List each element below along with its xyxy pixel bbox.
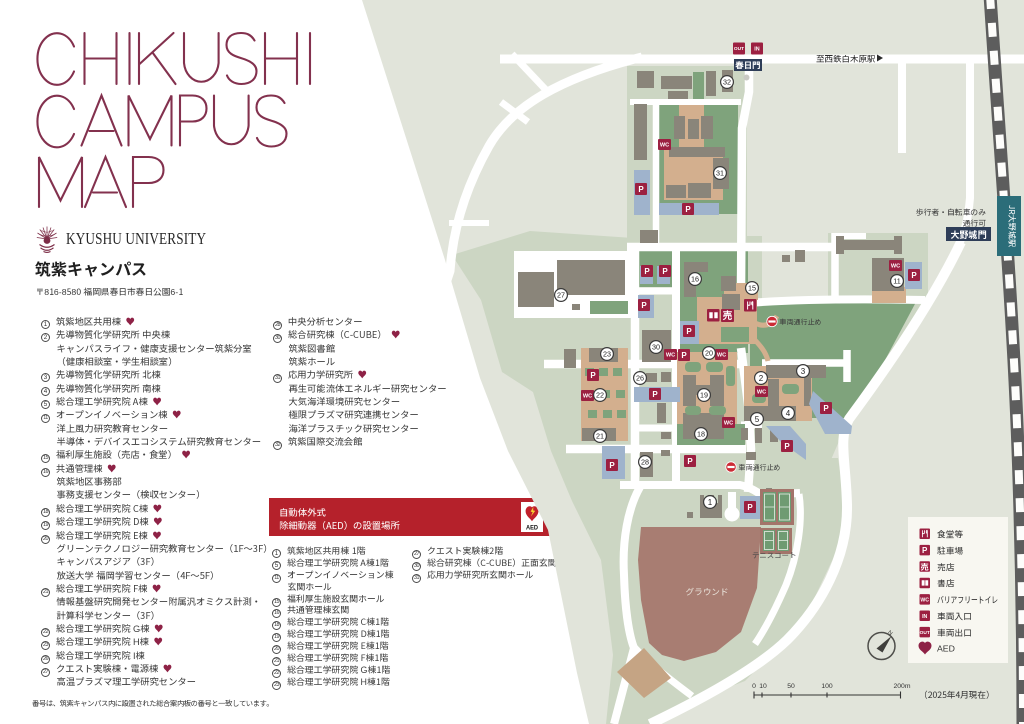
svg-text:P: P bbox=[662, 267, 668, 276]
svg-text:10: 10 bbox=[759, 683, 767, 690]
svg-text:車両入口: 車両入口 bbox=[937, 610, 972, 623]
svg-text:50: 50 bbox=[787, 683, 795, 690]
svg-text:P: P bbox=[685, 205, 691, 214]
svg-text:11: 11 bbox=[893, 277, 900, 286]
svg-text:WC: WC bbox=[724, 421, 733, 427]
svg-text:（2025年4月現在）: （2025年4月現在） bbox=[919, 689, 995, 701]
svg-text:P: P bbox=[784, 442, 790, 451]
svg-text:春日門: 春日門 bbox=[734, 60, 761, 72]
svg-text:P: P bbox=[590, 371, 596, 380]
svg-text:1: 1 bbox=[708, 498, 713, 507]
svg-text:P: P bbox=[609, 461, 615, 470]
svg-text:IN: IN bbox=[754, 46, 759, 52]
svg-text:食堂等: 食堂等 bbox=[937, 528, 963, 541]
svg-text:P: P bbox=[681, 351, 687, 360]
svg-text:20: 20 bbox=[705, 349, 713, 358]
svg-text:歩行者・自転車のみ: 歩行者・自転車のみ bbox=[916, 207, 986, 218]
svg-text:30: 30 bbox=[652, 343, 660, 352]
svg-text:至西鉄白木原駅: 至西鉄白木原駅 bbox=[816, 53, 876, 65]
svg-text:WC: WC bbox=[920, 598, 929, 604]
svg-text:車両通行止め: 車両通行止め bbox=[739, 463, 781, 473]
svg-text:P: P bbox=[911, 271, 917, 280]
svg-text:P: P bbox=[686, 327, 692, 336]
svg-text:P: P bbox=[823, 404, 829, 413]
svg-text:売: 売 bbox=[921, 561, 930, 573]
svg-text:5: 5 bbox=[755, 415, 760, 424]
svg-text:18: 18 bbox=[697, 430, 705, 439]
svg-text:車両通行止め: 車両通行止め bbox=[780, 318, 822, 328]
svg-text:WC: WC bbox=[583, 394, 592, 400]
svg-text:P: P bbox=[638, 185, 644, 194]
svg-text:P: P bbox=[652, 390, 658, 399]
svg-text:200m: 200m bbox=[893, 683, 910, 690]
svg-text:2: 2 bbox=[759, 374, 764, 383]
svg-text:22: 22 bbox=[596, 391, 604, 400]
svg-text:OUT: OUT bbox=[734, 46, 744, 52]
svg-text:書店: 書店 bbox=[937, 577, 955, 590]
svg-text:JR大野城駅: JR大野城駅 bbox=[1006, 205, 1018, 248]
svg-text:大野城門: 大野城門 bbox=[950, 228, 986, 241]
svg-text:WC: WC bbox=[660, 143, 669, 149]
svg-text:P: P bbox=[641, 301, 647, 310]
svg-text:AED: AED bbox=[937, 644, 955, 654]
svg-text:売: 売 bbox=[723, 310, 733, 322]
svg-text:15: 15 bbox=[748, 284, 756, 293]
svg-text:P: P bbox=[747, 503, 753, 512]
svg-text:32: 32 bbox=[723, 78, 731, 87]
svg-text:27: 27 bbox=[557, 291, 565, 300]
svg-text:売店: 売店 bbox=[937, 560, 955, 573]
svg-text:P: P bbox=[922, 546, 928, 555]
svg-text:4: 4 bbox=[786, 409, 791, 418]
svg-text:100: 100 bbox=[821, 683, 833, 690]
svg-text:バリアフリートイレ: バリアフリートイレ bbox=[937, 593, 998, 606]
svg-text:通行可: 通行可 bbox=[963, 218, 987, 229]
svg-text:車両出口: 車両出口 bbox=[937, 626, 972, 639]
svg-text:31: 31 bbox=[716, 169, 724, 178]
svg-text:WC: WC bbox=[666, 353, 675, 359]
svg-text:16: 16 bbox=[691, 275, 699, 284]
svg-text:OUT: OUT bbox=[920, 630, 930, 636]
svg-text:IN: IN bbox=[922, 614, 927, 620]
svg-text:WC: WC bbox=[891, 264, 900, 270]
svg-text:26: 26 bbox=[636, 374, 644, 383]
svg-text:グラウンド: グラウンド bbox=[686, 586, 729, 598]
svg-text:P: P bbox=[644, 267, 650, 276]
svg-text:テニスコート: テニスコート bbox=[752, 550, 796, 561]
svg-text:19: 19 bbox=[700, 391, 708, 400]
svg-text:P: P bbox=[687, 457, 693, 466]
svg-text:28: 28 bbox=[641, 458, 649, 467]
svg-text:21: 21 bbox=[596, 432, 604, 441]
svg-text:23: 23 bbox=[603, 350, 611, 359]
svg-text:駐車場: 駐車場 bbox=[936, 544, 963, 557]
svg-text:WC: WC bbox=[717, 353, 726, 359]
svg-text:3: 3 bbox=[801, 367, 806, 376]
svg-text:0: 0 bbox=[752, 683, 756, 690]
svg-text:WC: WC bbox=[757, 390, 766, 396]
